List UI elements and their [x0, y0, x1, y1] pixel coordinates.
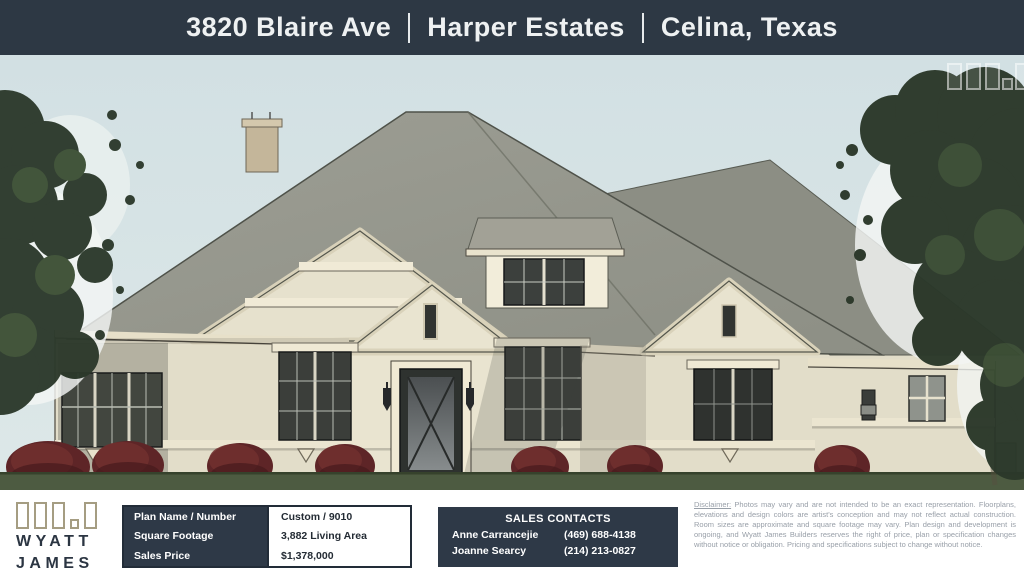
house-rendering — [0, 55, 1024, 490]
attic-window — [424, 304, 437, 339]
header-bar: 3820 Blaire Ave Harper Estates Celina, T… — [0, 0, 1024, 55]
garage-wing-window — [909, 376, 945, 421]
sales-price-value: $1,378,000 — [267, 546, 410, 566]
builder-name-line1: WYATT — [16, 533, 116, 551]
header-address: 3820 Blaire Ave — [186, 12, 391, 43]
builder-name-line2: JAMES — [16, 555, 116, 573]
contact-row: Anne Carrancejie (469) 688-4138 — [452, 529, 664, 541]
header-community: Harper Estates — [427, 12, 625, 43]
builder-logo: WYATT JAMES — [16, 502, 116, 573]
listing-flyer: 3820 Blaire Ave Harper Estates Celina, T… — [0, 0, 1024, 575]
square-footage-value: 3,882 Living Area — [267, 527, 410, 547]
contact-phone: (469) 688-4138 — [564, 529, 664, 541]
chimney — [242, 112, 282, 172]
sales-price-label: Sales Price — [124, 546, 267, 566]
header-city: Celina, Texas — [661, 12, 838, 43]
grass — [0, 472, 1024, 490]
front-door — [391, 361, 471, 478]
title-divider — [408, 13, 410, 43]
contact-name: Anne Carrancejie — [452, 529, 564, 541]
contact-phone: (214) 213-0827 — [564, 545, 664, 557]
disclaimer-body: Photos may vary and are not intended to … — [694, 500, 1016, 549]
plan-name-label: Plan Name / Number — [124, 507, 267, 527]
sales-contacts-title: SALES CONTACTS — [452, 513, 664, 525]
attic-vent — [722, 305, 736, 337]
logo-blocks-icon — [16, 502, 116, 529]
left-window — [272, 343, 358, 440]
title-divider — [642, 13, 644, 43]
plan-info-table: Plan Name / Number Custom / 9010 Square … — [122, 505, 412, 568]
disclaimer-text: Disclaimer: Photos may vary and are not … — [694, 500, 1016, 550]
dormer-window — [504, 259, 584, 305]
dormer — [466, 218, 624, 308]
plan-name-value: Custom / 9010 — [267, 507, 410, 527]
footer: WYATT JAMES Plan Name / Number Custom / … — [0, 490, 1024, 575]
contact-name: Joanne Searcy — [452, 545, 564, 557]
contact-row: Joanne Searcy (214) 213-0827 — [452, 545, 664, 557]
disclaimer-label: Disclaimer: — [694, 500, 731, 509]
sales-contacts-panel: SALES CONTACTS Anne Carrancejie (469) 68… — [438, 507, 678, 567]
utility-meter — [861, 390, 876, 420]
square-footage-label: Square Footage — [124, 527, 267, 547]
right-gable-window — [687, 360, 779, 440]
